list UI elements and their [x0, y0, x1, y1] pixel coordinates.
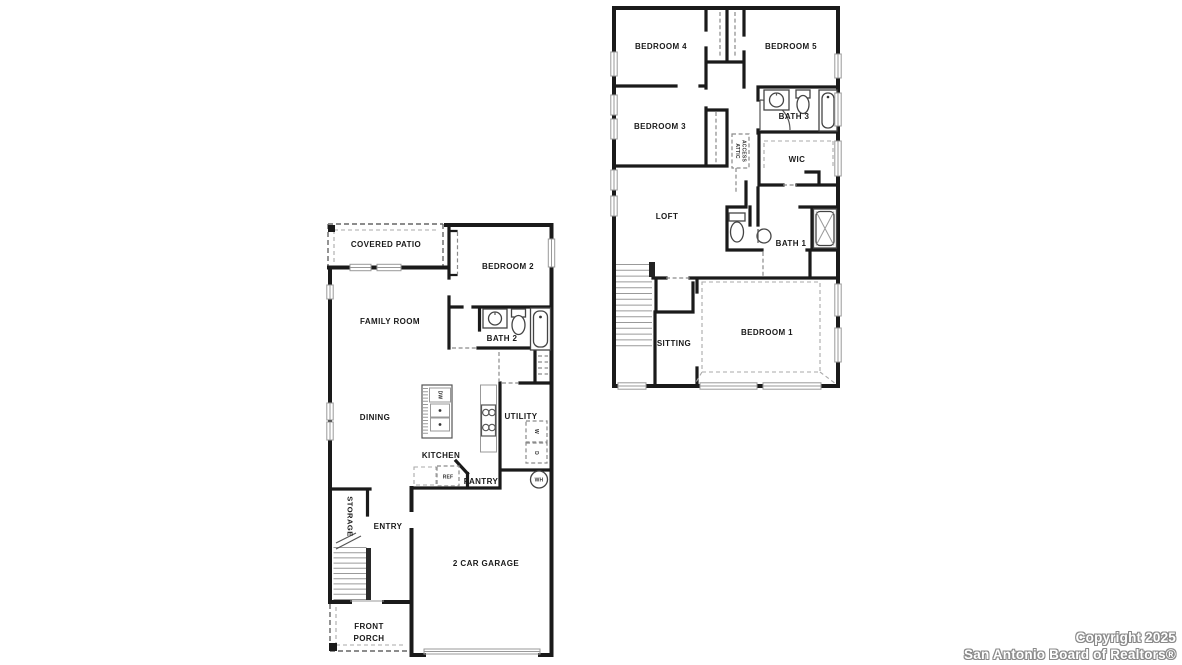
appliance-label-ref: REF: [443, 475, 454, 481]
window: [611, 52, 617, 76]
window: [763, 383, 821, 389]
room-label-bedroom2: BEDROOM 2: [482, 262, 534, 271]
window: [700, 383, 757, 389]
window: [611, 119, 617, 139]
room-label-bath3: BATH 3: [779, 112, 810, 121]
washer-dryer-boxes: [526, 421, 547, 463]
room-label-storage: STORAGE: [346, 496, 355, 536]
counter-dashed: [414, 467, 436, 485]
shower-icon: [814, 209, 837, 248]
room-label-bedroom1: BEDROOM 1: [741, 328, 793, 337]
window: [327, 285, 333, 299]
window: [611, 170, 617, 190]
window: [835, 93, 841, 126]
attic-access-label-1: ATTIC: [734, 143, 740, 159]
room-label-bedroom3: BEDROOM 3: [634, 122, 686, 131]
window: [618, 383, 646, 389]
room-label-front-porch-1: FRONT: [354, 622, 384, 631]
room-label-covered-patio: COVERED PATIO: [351, 240, 421, 249]
room-label-sitting: SITTING: [657, 339, 691, 348]
window: [611, 196, 617, 216]
appliance-label-dryer: D: [533, 451, 539, 455]
floor-plan-svg: COVERED PATIO BEDROOM 2 FAMILY ROOM BATH…: [0, 0, 1182, 665]
bath3-fixtures: [764, 90, 837, 131]
stairs-icon: [634, 262, 655, 348]
window: [835, 328, 841, 362]
room-label-bath2: BATH 2: [487, 334, 518, 343]
stair-rail: [366, 548, 371, 600]
window: [350, 264, 371, 270]
room-label-entry: ENTRY: [374, 522, 403, 531]
appliance-label-washer: W: [533, 429, 539, 434]
bathtub-icon: [531, 308, 551, 350]
sink-icon: [764, 90, 789, 110]
window: [377, 264, 401, 270]
room-label-front-porch-2: PORCH: [354, 634, 385, 643]
window: [548, 239, 554, 267]
cooktop-icon: [481, 385, 497, 452]
room-label-pantry: PANTRY: [464, 477, 499, 486]
room-label-wic: WIC: [789, 155, 806, 164]
window: [327, 403, 333, 420]
toilet-icon: [729, 213, 745, 242]
window: [835, 54, 841, 78]
room-label-bedroom4: BEDROOM 4: [635, 42, 687, 51]
room-label-kitchen: KITCHEN: [422, 451, 460, 460]
bath2-fixtures: [483, 308, 551, 350]
room-label-family-room: FAMILY ROOM: [360, 317, 420, 326]
floor2-interior-walls: [614, 8, 838, 386]
floor2-exterior-walls: [614, 8, 838, 386]
copyright-line1: Copyright 2025: [964, 630, 1176, 646]
sink-icon: [757, 229, 771, 243]
appliance-label-wh: WH: [535, 478, 544, 484]
floor1-plan: COVERED PATIO BEDROOM 2 FAMILY ROOM BATH…: [327, 224, 555, 655]
floor1-openings-dashed: [452, 348, 518, 383]
floor2-plan: ATTIC ACCESS: [611, 8, 841, 389]
appliance-label-dw: DW: [437, 391, 443, 400]
room-label-bath1: BATH 1: [776, 239, 807, 248]
linen-shelves-dashed: [538, 356, 548, 374]
attic-access-box: ATTIC ACCESS: [732, 134, 749, 168]
bathtub-icon: [819, 90, 837, 131]
toilet-icon: [796, 90, 810, 114]
floor-plan-canvas: COVERED PATIO BEDROOM 2 FAMILY ROOM BATH…: [0, 0, 1182, 665]
porch-post: [329, 643, 337, 651]
window: [611, 95, 617, 115]
room-label-dining: DINING: [360, 413, 390, 422]
stair-newel: [649, 262, 655, 277]
room-label-loft: LOFT: [656, 212, 678, 221]
floor1-exterior-walls: [329, 225, 552, 655]
window: [327, 422, 333, 440]
sink-icon: [483, 309, 507, 328]
window: [835, 141, 841, 176]
attic-access-label-2: ACCESS: [741, 140, 747, 163]
toilet-icon: [512, 309, 526, 335]
copyright-watermark: Copyright 2025 San Antonio Board of Real…: [964, 630, 1176, 663]
copyright-line2: San Antonio Board of Realtors®: [964, 647, 1176, 663]
window: [835, 284, 841, 316]
room-label-bedroom5: BEDROOM 5: [765, 42, 817, 51]
garage-door: [424, 649, 540, 654]
room-label-utility: UTILITY: [504, 412, 537, 421]
stairs-icon: [336, 533, 371, 600]
room-label-garage: 2 CAR GARAGE: [453, 559, 519, 568]
floor1-labels: COVERED PATIO BEDROOM 2 FAMILY ROOM BATH…: [346, 240, 544, 643]
patio-post: [328, 225, 335, 232]
